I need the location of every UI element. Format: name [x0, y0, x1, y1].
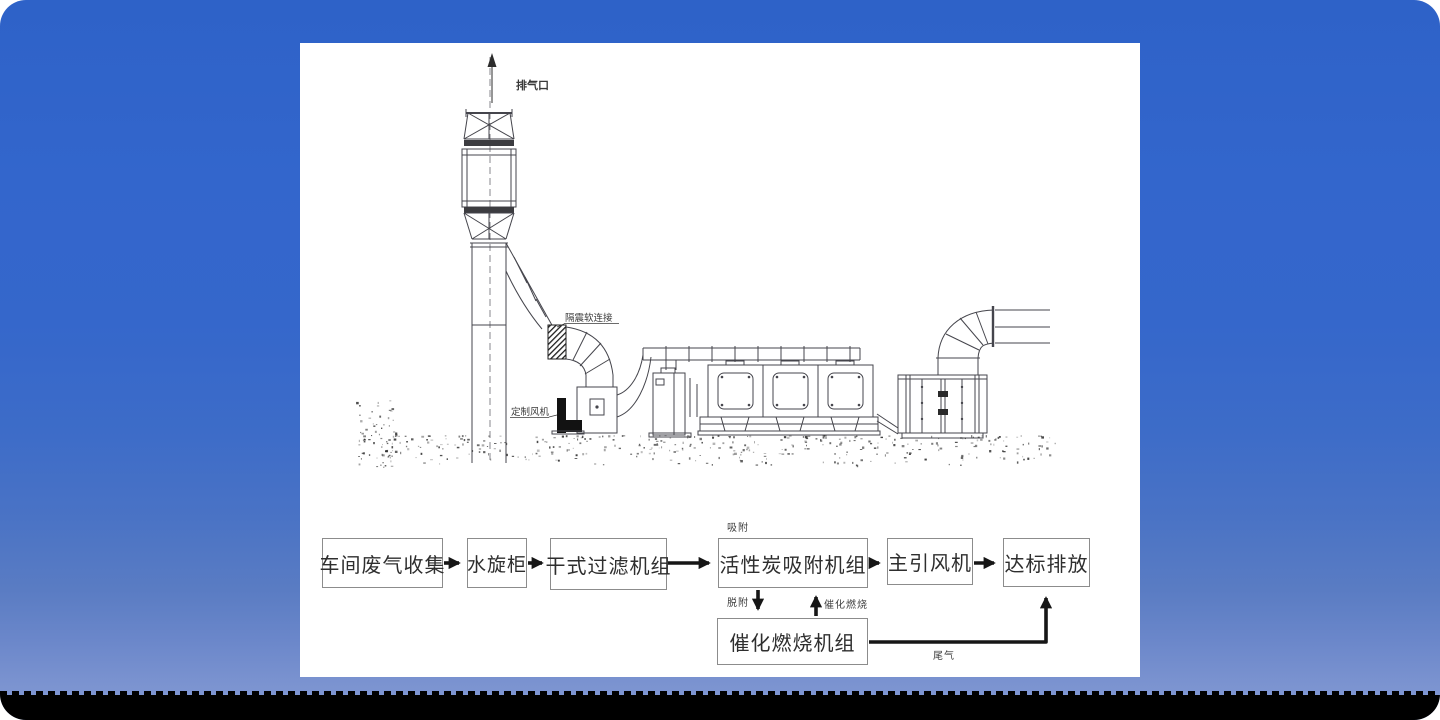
exhaust-stack: [462, 53, 516, 463]
exhaust-arrow-icon: [488, 53, 497, 103]
label-desorption: 脱附: [727, 594, 749, 609]
exhaust-outlet-label: 排气口: [516, 78, 549, 92]
flowchart-box-water-spin-cabinet: 水旋柜: [467, 538, 527, 588]
flowchart-box-dry-filter-unit: 干式过滤机组: [550, 538, 667, 590]
label-adsorption: 吸附: [727, 519, 749, 534]
flowchart-box-catalytic-combustion-unit: 催化燃烧机组: [717, 618, 868, 665]
arrow-tail-gas-to-discharge: [869, 598, 1046, 642]
flowchart-box-standard-discharge: 达标排放: [1003, 538, 1090, 587]
filter-tank: [649, 368, 697, 437]
flex-joint-hatch: [548, 325, 566, 359]
label-catalytic-combustion: 催化燃烧: [824, 596, 868, 611]
flowchart-box-activated-carbon-adsorption-unit: 活性炭吸附机组: [718, 538, 868, 588]
screen-background: 排气口 隔震软连接 定制风机 车间废气收集 水旋柜: [0, 0, 1440, 720]
flowchart-box-workshop-gas-collection: 车间废气收集: [322, 538, 443, 588]
bottom-black-band: [0, 695, 1440, 720]
module-base: [698, 417, 880, 435]
flex-connector-label: 隔震软连接: [565, 312, 613, 324]
custom-fan-label: 定制风机: [511, 406, 550, 418]
label-tail-gas: 尾气: [933, 647, 955, 662]
filter-and-adsorption-units: [617, 346, 898, 437]
duct-to-fan: [506, 243, 617, 434]
adsorption-modules: [708, 361, 873, 417]
flowchart-box-main-draft-fan: 主引风机: [887, 538, 973, 585]
ground-texture: [356, 400, 1056, 467]
diagram-panel: 排气口 隔震软连接 定制风机 车间废气收集 水旋柜: [300, 43, 1140, 677]
right-cabinet-and-duct: [898, 306, 1050, 438]
fan-unit: [552, 398, 584, 434]
